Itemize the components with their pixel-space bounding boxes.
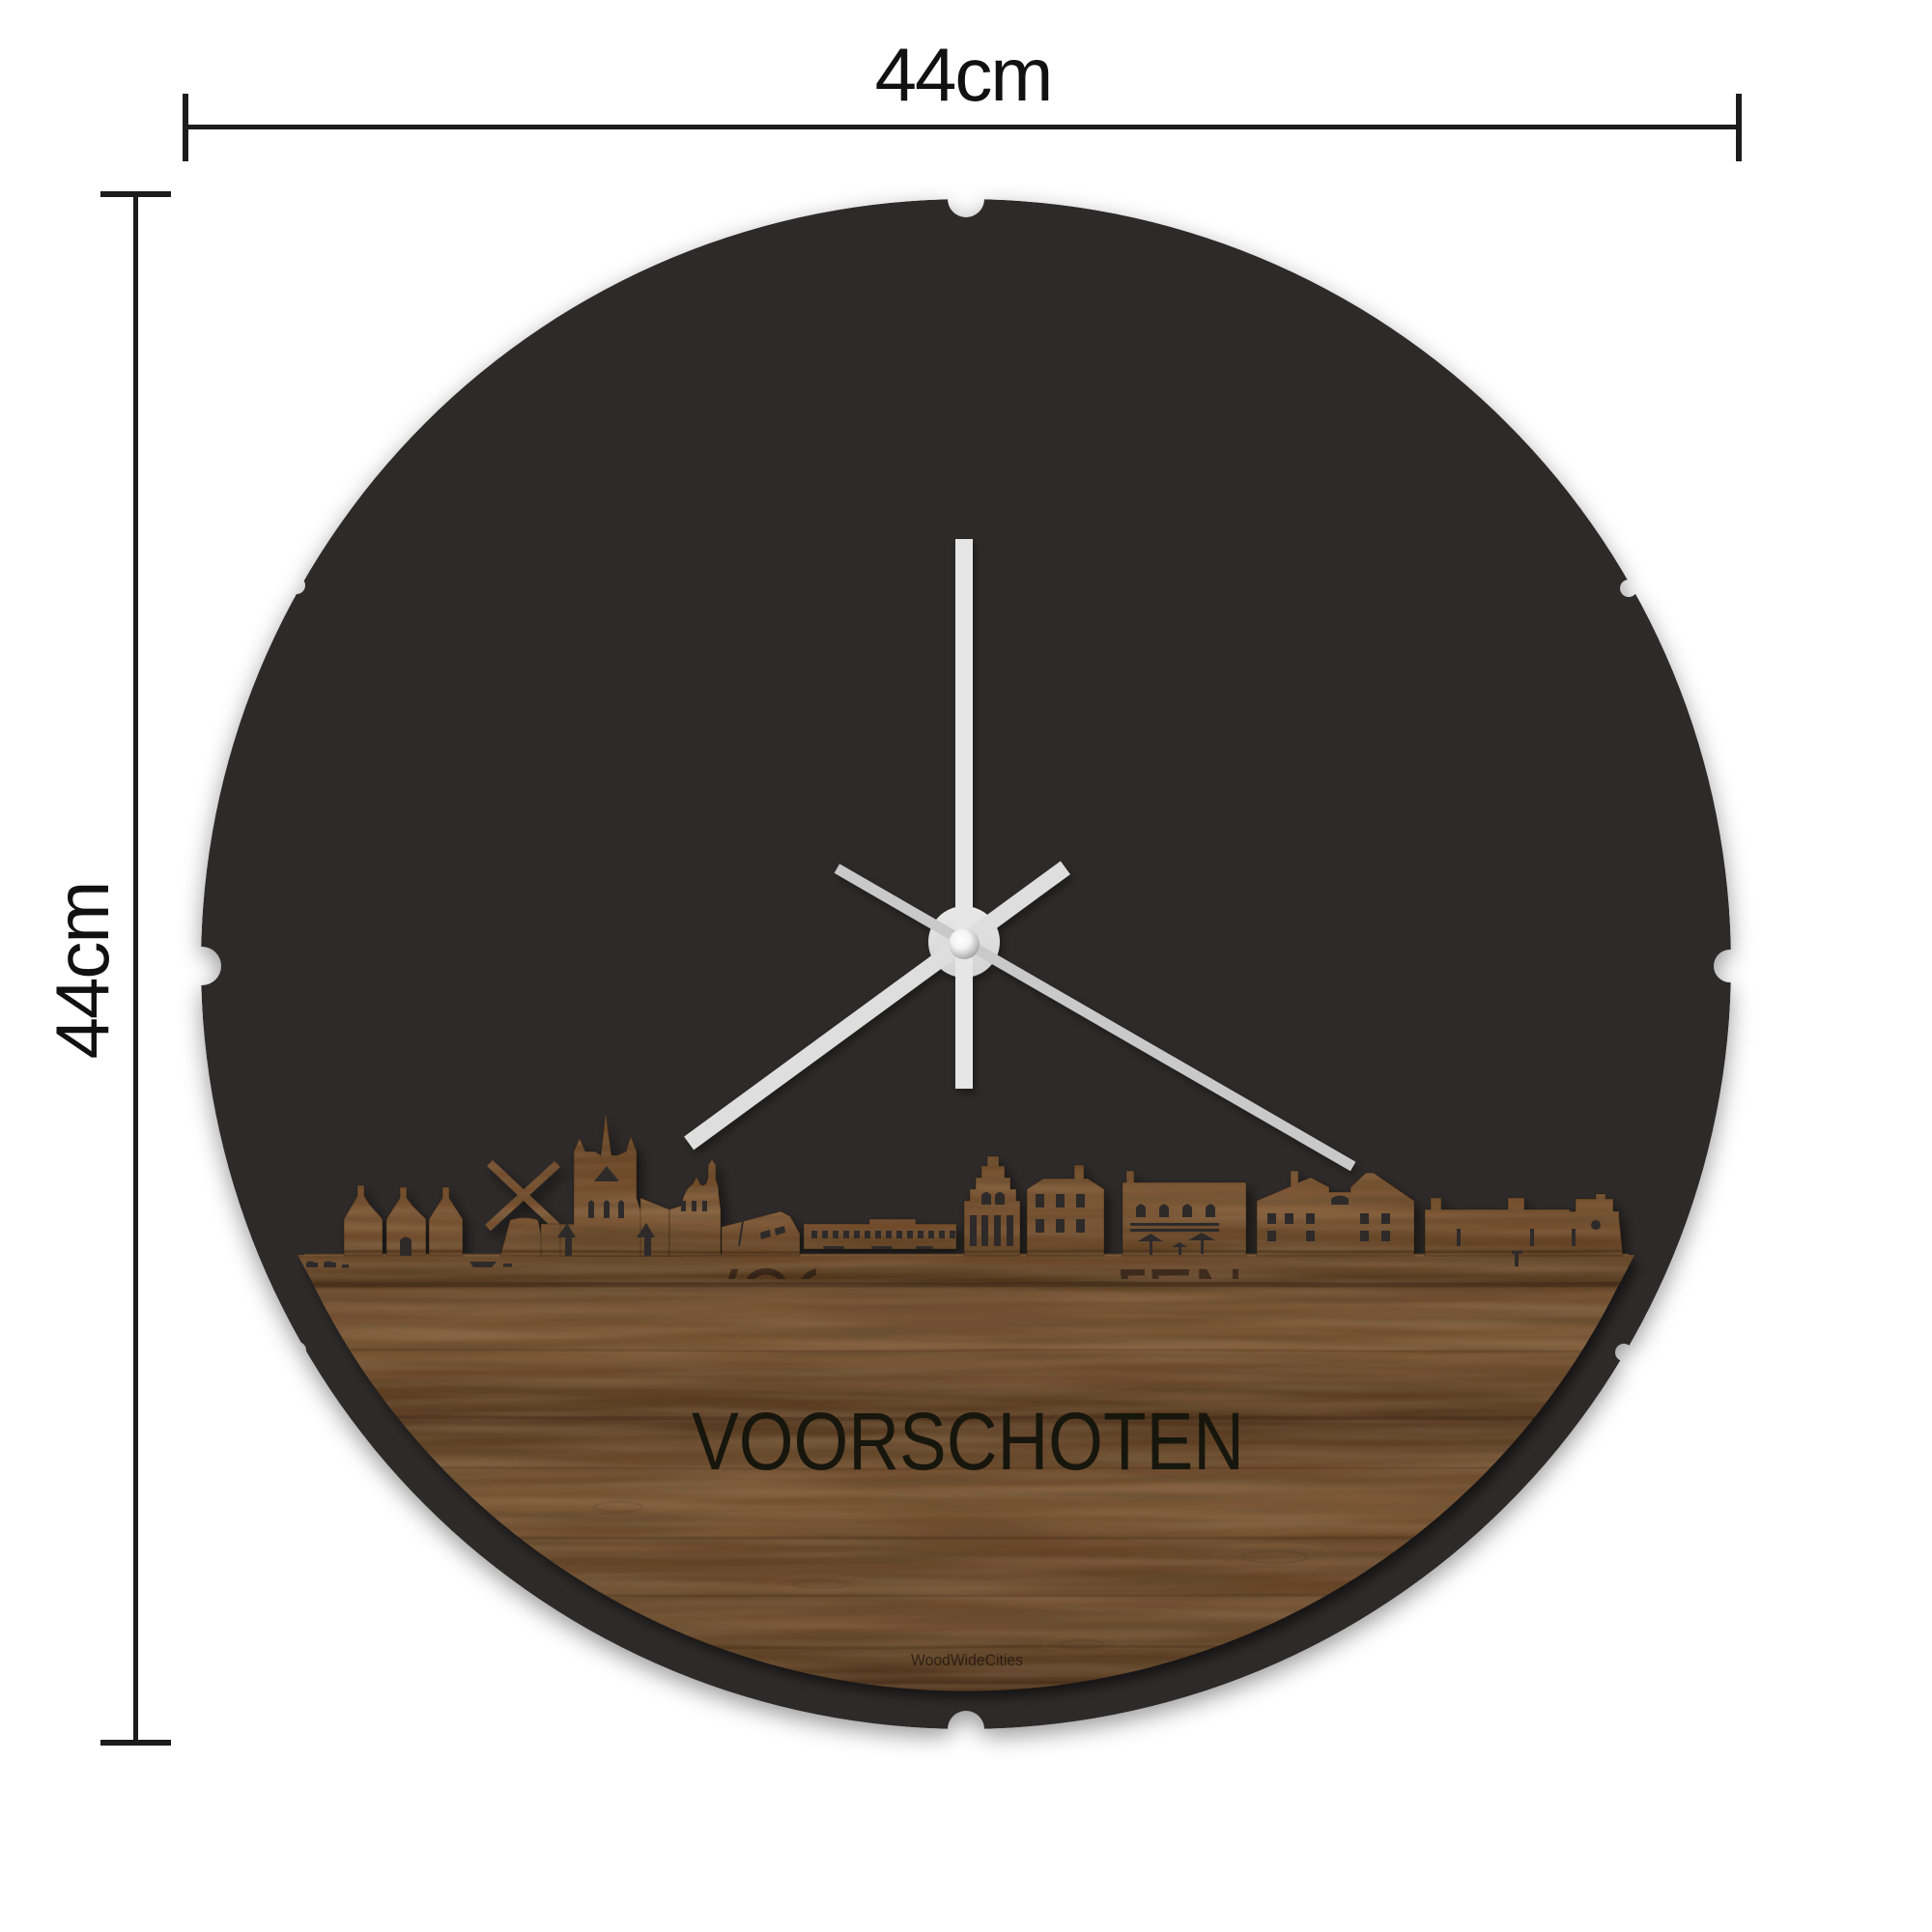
svg-text:44cm: 44cm <box>40 883 125 1060</box>
svg-text:44cm: 44cm <box>875 32 1052 117</box>
svg-text:VOORSCHOTEN: VOORSCHOTEN <box>692 1396 1244 1487</box>
svg-text:WoodWideCities: WoodWideCities <box>911 1651 1023 1669</box>
